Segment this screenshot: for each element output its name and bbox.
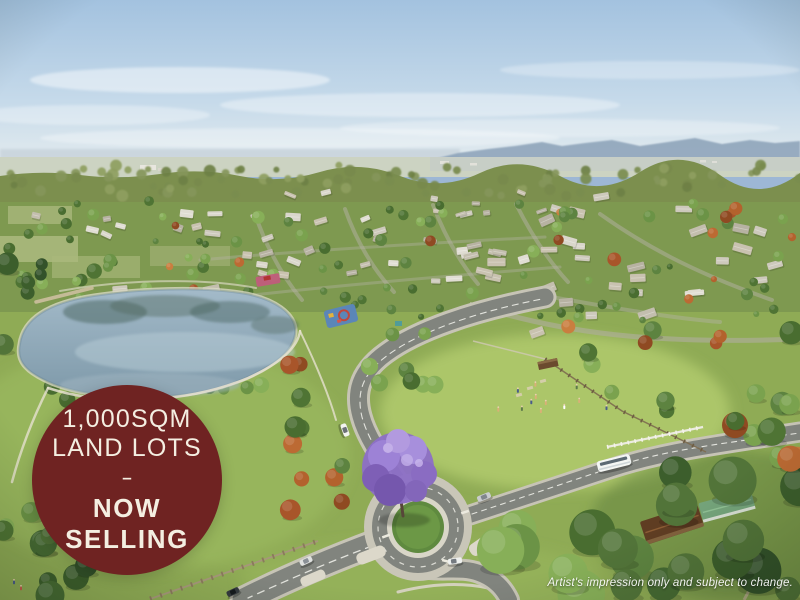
disclaimer-text: Artist's impression only and subject to … xyxy=(547,577,793,589)
badge-line-3: NOW xyxy=(93,493,161,524)
estate-aerial-render: 1,000SQM LAND LOTS – NOW SELLING Artist'… xyxy=(0,0,800,600)
badge-line-2: LAND LOTS xyxy=(52,434,202,463)
now-selling-badge: 1,000SQM LAND LOTS – NOW SELLING xyxy=(32,385,222,575)
badge-line-1: 1,000SQM xyxy=(62,405,191,434)
badge-line-4: SELLING xyxy=(65,524,189,555)
badge-separator: – xyxy=(122,469,131,486)
